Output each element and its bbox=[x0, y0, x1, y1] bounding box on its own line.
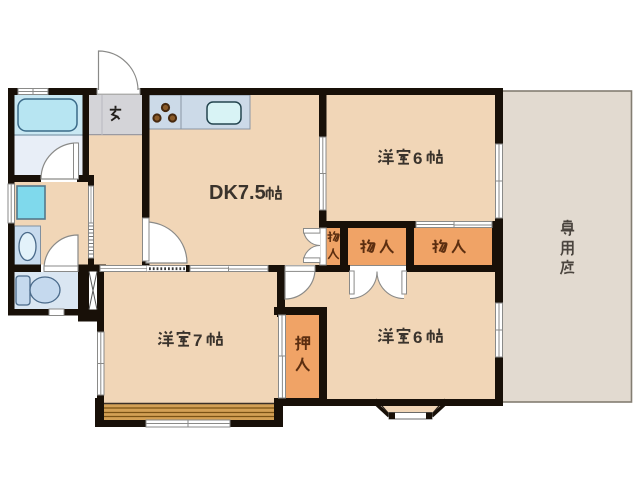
svg-text:6: 6 bbox=[413, 149, 422, 168]
svg-text:DK7.5: DK7.5 bbox=[209, 182, 266, 204]
svg-text:6: 6 bbox=[413, 328, 422, 347]
svg-text:7: 7 bbox=[193, 331, 202, 350]
